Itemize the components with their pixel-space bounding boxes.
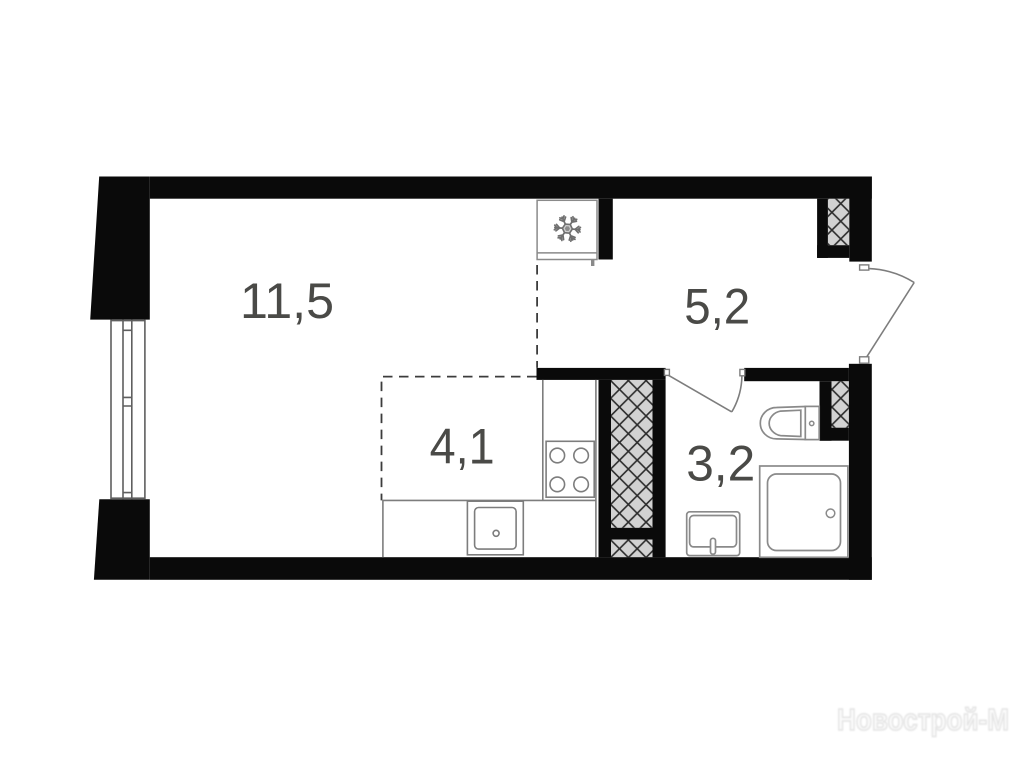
- svg-text:Новострой-М: Новострой-М: [837, 702, 1009, 737]
- svg-text:3,2: 3,2: [686, 436, 755, 492]
- svg-text:4,1: 4,1: [430, 418, 495, 474]
- svg-text:5,2: 5,2: [684, 279, 750, 335]
- svg-text:11,5: 11,5: [240, 273, 334, 329]
